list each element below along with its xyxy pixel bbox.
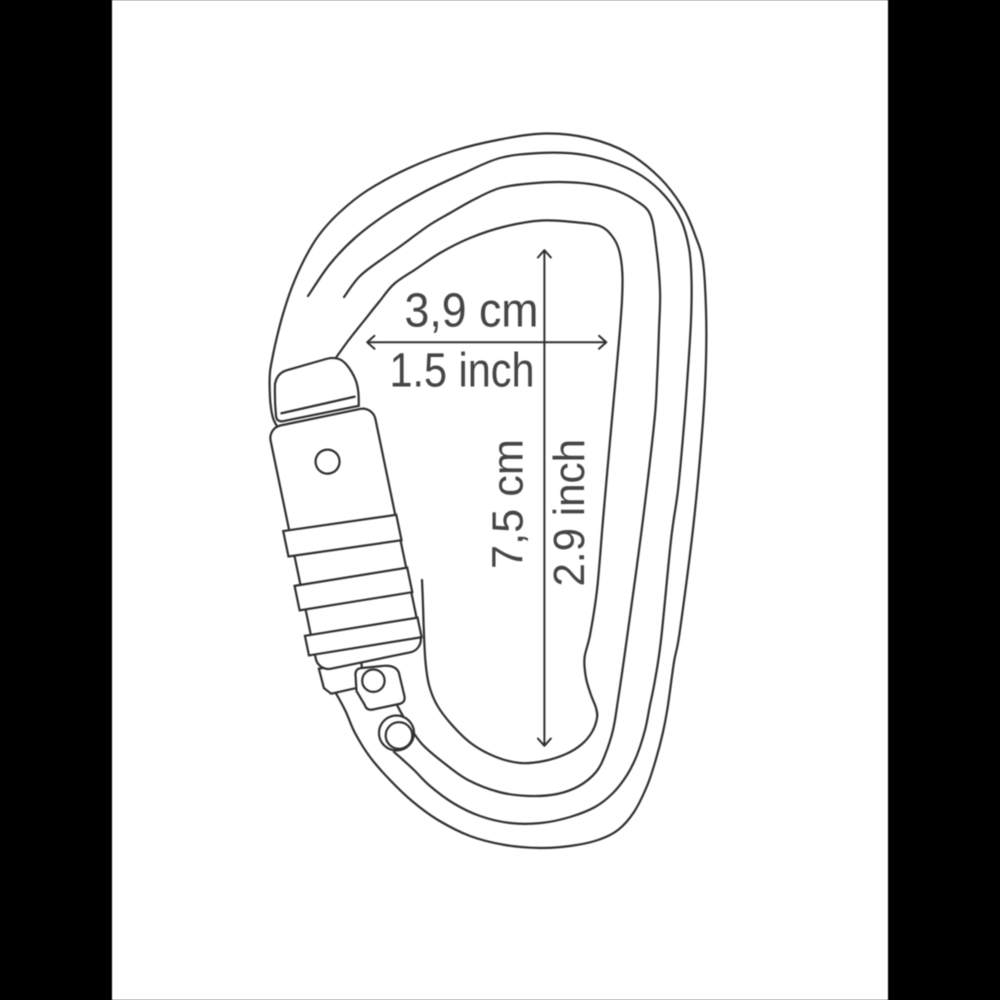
svg-text:1.5 inch: 1.5 inch: [390, 345, 535, 398]
svg-text:3,9 cm: 3,9 cm: [405, 285, 539, 338]
svg-text:7,5 cm: 7,5 cm: [485, 439, 533, 569]
svg-text:2.9 inch: 2.9 inch: [546, 439, 594, 587]
